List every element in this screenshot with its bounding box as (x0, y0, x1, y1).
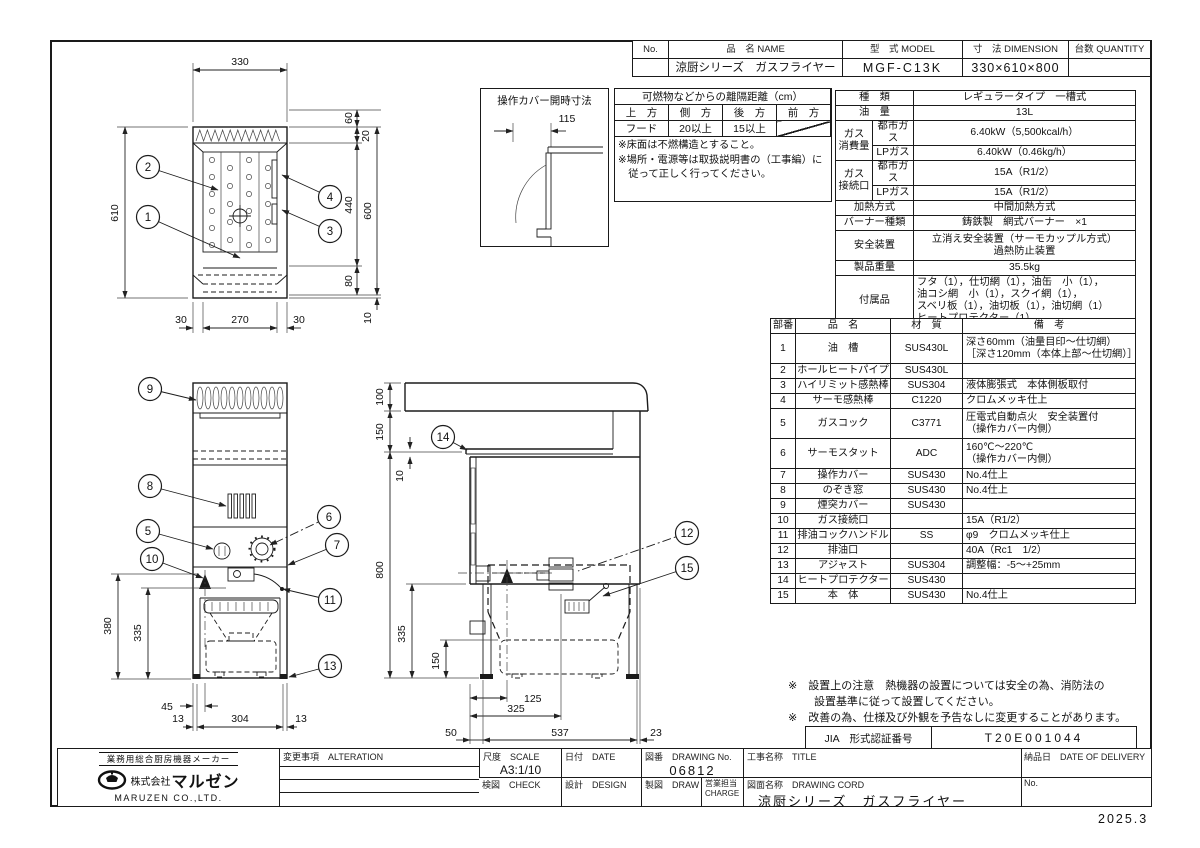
oil-can-hidden-front (206, 633, 276, 677)
balloon-7: 7 (326, 534, 349, 557)
parts-row: 10ガス接続口15A（R1/2） (771, 514, 1136, 529)
spec-burner-label: バーナー種類 (836, 216, 914, 231)
parts-row: 14ヒートプロテクターSUS430 (771, 574, 1136, 589)
dim-plan-30a: 30 (175, 314, 187, 326)
svg-text:6: 6 (326, 512, 332, 524)
dim-front-13a: 13 (172, 713, 184, 725)
parts-row: 8のぞき窓SUS430No.4仕上 (771, 484, 1136, 499)
backguard-prow (633, 383, 648, 411)
balloon-2: 2 (137, 156, 160, 179)
balloon-11: 11 (319, 589, 342, 612)
clearance-h-side: 側 方 (669, 105, 723, 121)
parts-row: 3ハイリミット感熱棒SUS304液体膨張式 本体側板取付 (771, 379, 1136, 394)
product-no (633, 59, 669, 77)
drawing-name-value: 涼厨シリーズ ガスフライヤー (744, 791, 1021, 810)
col-dimension-header: 寸 法 DIMENSION (963, 41, 1069, 59)
clearance-h-top: 上 方 (615, 105, 669, 121)
parts-row: 11排油コックハンドルSSφ9 クロムメッキ仕上 (771, 529, 1136, 544)
dim-side-325: 325 (507, 703, 525, 715)
col-quantity-header: 台数 QUANTITY (1069, 41, 1151, 59)
scale-cell: 尺度 SCALE A3:1/10 (479, 749, 561, 777)
product-name: 涼厨シリーズ ガスフライヤー (669, 59, 843, 77)
svg-text:11: 11 (324, 595, 336, 607)
svg-text:1: 1 (145, 212, 151, 224)
dim-plan-10: 10 (362, 312, 374, 324)
parts-row: 15本 体SUS430No.4仕上 (771, 589, 1136, 604)
pilot-knob (214, 543, 230, 559)
svg-text:5: 5 (145, 526, 151, 538)
drain-valve-cluster (537, 558, 573, 590)
date-cell: 日付 DATE (561, 749, 641, 777)
dim-plan-80: 80 (343, 275, 355, 287)
scale-value: A3:1/10 (480, 763, 561, 777)
dim-side-537: 537 (551, 727, 569, 739)
svg-text:3: 3 (327, 226, 333, 238)
spec-gasconn-city-label: 都市ガス (873, 161, 914, 186)
dim-front-45: 45 (161, 701, 173, 713)
parts-row: 4サーモ感熱棒C1220クロムメッキ仕上 (771, 394, 1136, 409)
issue-date: 2025.3 (1098, 812, 1148, 826)
dim-side-50: 50 (445, 727, 457, 739)
cover-open-box: 操作カバー開時寸法 (480, 88, 609, 247)
svg-text:12: 12 (681, 528, 694, 540)
svg-text:2: 2 (145, 162, 151, 174)
clearance-rear-val: 15以上 (723, 121, 777, 137)
parts-row: 13アジャストSUS304調整幅：-5～+25mm (771, 559, 1136, 574)
spec-gasuse-lp-label: LPガス (873, 146, 914, 161)
spec-heating: 中間加熱方式 (914, 201, 1136, 216)
clearance-notes: ※床面は不燃構造とすること。 ※場所・電源等は取扱説明書の（工事編）に 従って正… (615, 137, 831, 183)
svg-text:15: 15 (681, 563, 694, 575)
parts-h-no: 部番 (771, 319, 796, 334)
drain-cock-handle-front (228, 568, 284, 591)
spec-gasuse-lp: 6.40kW（0.46kg/h） (914, 146, 1136, 161)
spec-burner: 鋳鉄製 網式バーナー ×1 (914, 216, 1136, 231)
dim-plan-depth: 610 (109, 204, 121, 222)
clearance-h-front: 前 方 (777, 105, 831, 121)
drawing-name-cell: 図面名称 DRAWING CORD 涼厨シリーズ ガスフライヤー (743, 777, 1021, 806)
maruzen-logo: 業務用総合厨房機器メーカー 株式会社 マルゼン MARUZEN CO.,LTD. (58, 749, 279, 806)
parts-row: 12排油口40A（Rc1 1/2） (771, 544, 1136, 559)
operation-cover-side (471, 468, 475, 524)
strainer-tray (204, 600, 278, 613)
spec-gasuse-city: 6.40kW（5,500kcal/h） (914, 121, 1136, 146)
clearance-front-val (777, 121, 831, 137)
balloon-6: 6 (318, 506, 341, 529)
product-quantity (1069, 59, 1151, 77)
balloon-3: 3 (319, 220, 342, 243)
parts-row: 7操作カバーSUS430No.4仕上 (771, 469, 1136, 484)
parts-row: 6サーモスタットADC160℃～220℃ （操作カバー内側） (771, 439, 1136, 469)
dim-plan-30b: 30 (293, 314, 305, 326)
order-no-cell: No. (1021, 777, 1151, 806)
adjust-foot-right (280, 674, 288, 679)
charge-cell: 営業担当 CHARGE (701, 777, 743, 806)
clearance-hood: フード (615, 121, 669, 137)
parts-row: 1油 槽SUS430L深さ60mm（油量目印～仕切網） ［深さ120mm（本体上… (771, 334, 1136, 364)
parts-row: 9煙突カバーSUS430 (771, 499, 1136, 514)
spec-gasconn-city: 15A（R1/2） (914, 161, 1136, 186)
svg-text:8: 8 (147, 481, 153, 493)
skimmer-hidden (565, 584, 609, 614)
maker-tagline: 業務用総合厨房機器メーカー (99, 752, 239, 766)
dim-side-125: 125 (524, 693, 542, 705)
adjust-foot-rear (626, 674, 639, 679)
balloon-8: 8 (139, 475, 162, 498)
installation-notes: ※ 設置上の注意 熱機器の設置については安全の為、消防法の 設置基準に従って設置… (788, 678, 1148, 726)
design-cell: 設計 DESIGN (561, 777, 641, 806)
company-name-en: MARUZEN CO.,LTD. (58, 793, 279, 803)
maruzen-logo-mark (97, 770, 127, 790)
cover-open-title: 操作カバー開時寸法 (481, 93, 608, 108)
oil-can-hidden-side (500, 640, 618, 678)
dim-side-150-bottom: 150 (430, 652, 442, 670)
peep-window-side (471, 533, 475, 565)
product-dimension: 330×610×800 (963, 59, 1069, 77)
spec-gasconn-lp-label: LPガス (873, 186, 914, 201)
clearance-title: 可燃物などからの離隔距離（cm） (615, 89, 831, 105)
spec-heating-label: 加熱方式 (836, 201, 914, 216)
dim-side-335: 335 (396, 625, 408, 643)
side-view: 100 150 800 10 335 150 125 325 (374, 383, 662, 744)
dim-front-335: 335 (132, 624, 144, 642)
dim-plan-600: 600 (362, 202, 374, 220)
parts-h-remark: 備 考 (963, 319, 1136, 334)
company-name: マルゼン (171, 768, 239, 792)
balloon-5: 5 (137, 520, 160, 543)
spec-weight: 35.5kg (914, 261, 1136, 276)
highlimit-sensor-plan (272, 204, 277, 224)
balloon-1: 1 (137, 206, 160, 229)
parts-h-material: 材 質 (891, 319, 963, 334)
col-no-header: No. (633, 41, 669, 59)
adjust-foot-front (480, 674, 493, 679)
balloon-9: 9 (139, 378, 162, 401)
jia-certification: JIA 形式認証番号 T20E001044 (805, 726, 1137, 750)
funnel-hidden (210, 613, 272, 641)
parts-h-name: 品 名 (796, 319, 891, 334)
clearance-box: 可燃物などからの離隔距離（cm） 上 方 側 方 後 方 前 方 フード 20以… (614, 88, 832, 202)
dim-front-304: 304 (231, 713, 249, 725)
svg-text:9: 9 (147, 384, 153, 396)
clearance-h-rear: 後 方 (723, 105, 777, 121)
front-view: 380 335 45 13 304 13 (102, 383, 307, 731)
dim-side-10: 10 (394, 470, 406, 482)
spec-gasconn-lp: 15A（R1/2） (914, 186, 1136, 201)
col-model-header: 型 式 MODEL (843, 41, 963, 59)
spec-table: 種 類レギュラータイプ 一槽式 油 量13L ガス 消費量都市ガス6.40kW（… (835, 90, 1136, 326)
svg-text:4: 4 (327, 192, 334, 204)
dim-plan-20: 20 (360, 130, 372, 142)
dim-side-23: 23 (650, 727, 662, 739)
balloon-10: 10 (141, 548, 164, 571)
spec-type-label: 種 類 (836, 91, 914, 106)
parts-row: 5ガスコックC3771圧電式自動点火 安全装置付 （操作カバー内側） (771, 409, 1136, 439)
thermo-sensor-plan (272, 160, 277, 198)
svg-text:7: 7 (334, 540, 340, 552)
flue-louver-hatch (196, 130, 280, 141)
flue-cover-louver (197, 387, 283, 409)
svg-text:14: 14 (437, 432, 450, 444)
balloon-15: 15 (676, 557, 699, 580)
dim-plan-width: 330 (231, 56, 249, 68)
spec-gasconn-label: ガス 接続口 (836, 161, 873, 201)
spec-safety: 立消え安全装置（サーモカップル方式） 過熱防止装置 (914, 231, 1136, 261)
parts-table: 部番 品 名 材 質 備 考 1油 槽SUS430L深さ60mm（油量目印～仕切… (770, 318, 1136, 604)
balloon-14: 14 (432, 426, 455, 449)
parts-row: 2ホールヒートパイプSUS430L (771, 364, 1136, 379)
dim-side-800: 800 (374, 561, 386, 579)
dim-side-100: 100 (374, 388, 386, 406)
dim-plan-270: 270 (231, 314, 249, 326)
drawing-no-cell: 図番 DRAWING No. 06812 (641, 749, 743, 777)
spec-gasuse-city-label: 都市ガス (873, 121, 914, 146)
product-model: MGF-C13K (843, 59, 963, 77)
balloon-13: 13 (319, 655, 342, 678)
spec-gasuse-label: ガス 消費量 (836, 121, 873, 161)
dim-front-13b: 13 (295, 713, 307, 725)
spec-oil: 13L (914, 106, 1136, 121)
balloon-12: 12 (676, 522, 699, 545)
svg-text:10: 10 (146, 554, 159, 566)
balloon-4: 4 (319, 186, 342, 209)
jia-label: JIA 形式認証番号 (806, 727, 932, 749)
jia-number: T20E001044 (932, 727, 1136, 749)
alteration-cell: 変更事項 ALTERATION (279, 749, 479, 806)
drawing-sheet: 330 610 60 20 440 80 600 10 (0, 0, 1200, 848)
thermostat-knob (250, 537, 275, 562)
draw-cell: 製図 DRAW (641, 777, 701, 806)
spec-type: レギュラータイプ 一槽式 (914, 91, 1136, 106)
delivery-cell: 納品日 DATE OF DELIVERY (1021, 749, 1151, 777)
peep-window-grille (228, 494, 256, 518)
company-prefix: 株式会社 (130, 773, 170, 788)
dim-side-150-top: 150 (374, 423, 386, 441)
adjust-foot-left (193, 674, 201, 679)
spec-oil-label: 油 量 (836, 106, 914, 121)
dim-plan-440: 440 (343, 196, 355, 214)
spec-safety-label: 安全装置 (836, 231, 914, 261)
drawing-no-value: 06812 (642, 763, 743, 778)
dim-plan-60: 60 (343, 112, 355, 124)
dim-front-380: 380 (102, 617, 114, 635)
svg-text:13: 13 (324, 661, 337, 673)
col-name-header: 品 名 NAME (669, 41, 843, 59)
title-strip-table: No. 品 名 NAME 型 式 MODEL 寸 法 DIMENSION 台数 … (632, 40, 1151, 77)
check-cell: 検図 CHECK (479, 777, 561, 806)
spec-weight-label: 製品重量 (836, 261, 914, 276)
work-title-cell: 工事名称 TITLE (743, 749, 1021, 777)
clearance-side-val: 20以上 (669, 121, 723, 137)
title-block: 業務用総合厨房機器メーカー 株式会社 マルゼン MARUZEN CO.,LTD.… (57, 748, 1152, 807)
